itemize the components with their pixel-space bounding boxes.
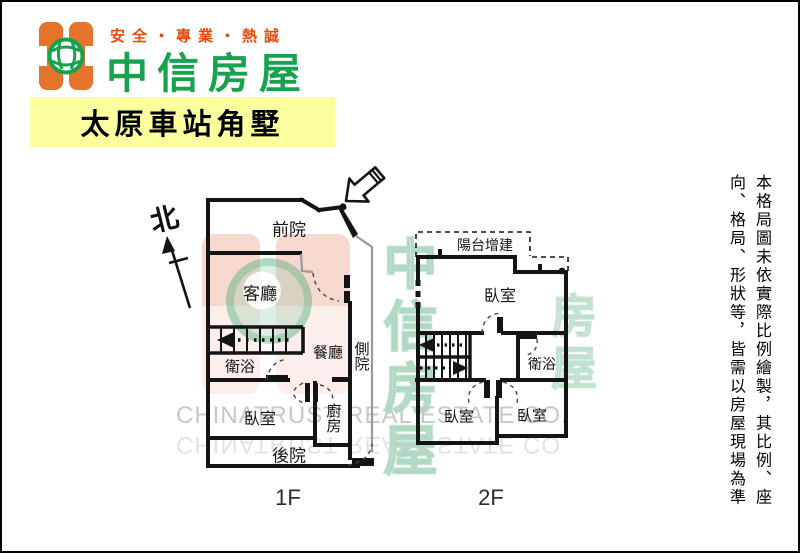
room-label-back-yard: 後院	[272, 442, 306, 467]
floor1-staircase	[208, 327, 303, 353]
floorplan-drawing	[0, 0, 800, 553]
room-label-balcony-addition: 陽台增建	[457, 235, 513, 255]
disclaimer-column-2: 向、格局、形狀等，皆需以房屋現場為準	[722, 174, 748, 519]
room-label-bedroom-2f-left: 臥室	[444, 406, 474, 427]
room-label-kitchen: 廚房	[323, 403, 344, 433]
room-label-front-yard: 前院	[272, 216, 306, 241]
north-arrow-icon	[162, 236, 190, 308]
stair-arrow-up	[217, 332, 234, 348]
room-label-bedroom-1f: 臥室	[244, 405, 276, 429]
room-label-bathroom-1f: 衛浴	[225, 356, 255, 377]
floor1-caption: 1F	[275, 485, 301, 511]
flyer-page: 安全・專業・熱誠 中信房屋 太原車站角墅 中信房屋 房屋 CHINATRUST …	[0, 0, 800, 553]
room-label-side-yard: 側院	[351, 341, 372, 371]
floor2-door-pivot	[559, 268, 566, 275]
entry-door-leaf	[339, 206, 358, 238]
room-label-living-room: 客廳	[243, 280, 277, 305]
room-label-bedroom-2f-top: 臥室	[484, 282, 516, 306]
disclaimer-column-1: 本格局圖未依實際比例繪製，其比例、座	[748, 174, 774, 519]
floor2-caption: 2F	[478, 485, 504, 511]
room-label-bedroom-2f-right: 臥室	[517, 405, 547, 426]
floor2-staircase	[417, 333, 470, 380]
room-label-dining-room: 餐廳	[313, 342, 343, 363]
room-label-bathroom-2f: 衛浴	[528, 354, 556, 374]
disclaimer-text: 本格局圖未依實際比例繪製，其比例、座 向、格局、形狀等，皆需以房屋現場為準	[722, 174, 774, 519]
floor1-door-leaves	[266, 203, 374, 466]
